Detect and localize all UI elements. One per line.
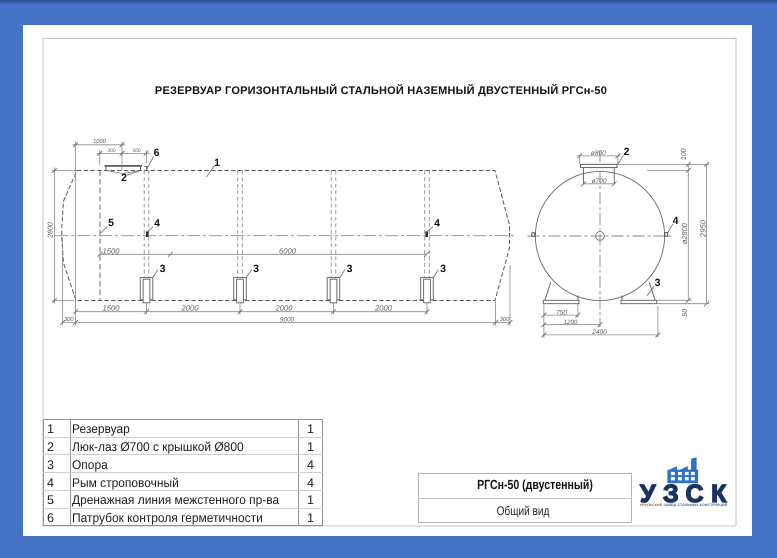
- svg-text:50: 50: [682, 309, 689, 317]
- svg-text:3: 3: [160, 263, 166, 275]
- svg-text:4: 4: [434, 218, 440, 230]
- svg-text:300: 300: [500, 316, 511, 323]
- svg-text:2: 2: [121, 172, 127, 184]
- svg-text:3: 3: [253, 263, 259, 275]
- svg-text:2950: 2950: [699, 219, 708, 238]
- svg-text:2000: 2000: [181, 304, 200, 313]
- svg-text:100: 100: [681, 148, 688, 160]
- svg-text:4: 4: [154, 218, 160, 230]
- svg-text:3: 3: [347, 263, 353, 275]
- svg-text:4: 4: [673, 215, 679, 227]
- svg-text:1500: 1500: [103, 246, 121, 255]
- svg-text:300: 300: [64, 316, 75, 323]
- svg-text:2: 2: [624, 146, 630, 158]
- svg-text:6000: 6000: [279, 246, 297, 255]
- svg-text:2000: 2000: [275, 304, 294, 313]
- svg-text:300: 300: [107, 148, 116, 154]
- svg-text:500: 500: [132, 148, 141, 154]
- svg-text:6: 6: [154, 147, 160, 159]
- svg-text:1000: 1000: [93, 138, 107, 145]
- svg-text:1500: 1500: [103, 304, 121, 313]
- svg-text:3: 3: [440, 263, 446, 275]
- svg-text:ø700: ø700: [591, 178, 606, 185]
- svg-text:9000: 9000: [280, 317, 295, 324]
- svg-text:1200: 1200: [564, 319, 578, 326]
- svg-text:2000: 2000: [374, 304, 393, 313]
- svg-text:ø2800: ø2800: [680, 222, 689, 244]
- svg-text:3: 3: [655, 277, 661, 289]
- svg-text:5: 5: [108, 217, 114, 229]
- svg-text:2400: 2400: [591, 329, 607, 336]
- svg-text:ø800: ø800: [591, 150, 606, 157]
- svg-text:1: 1: [214, 157, 220, 169]
- svg-text:2800: 2800: [48, 222, 55, 239]
- svg-text:750: 750: [556, 309, 567, 316]
